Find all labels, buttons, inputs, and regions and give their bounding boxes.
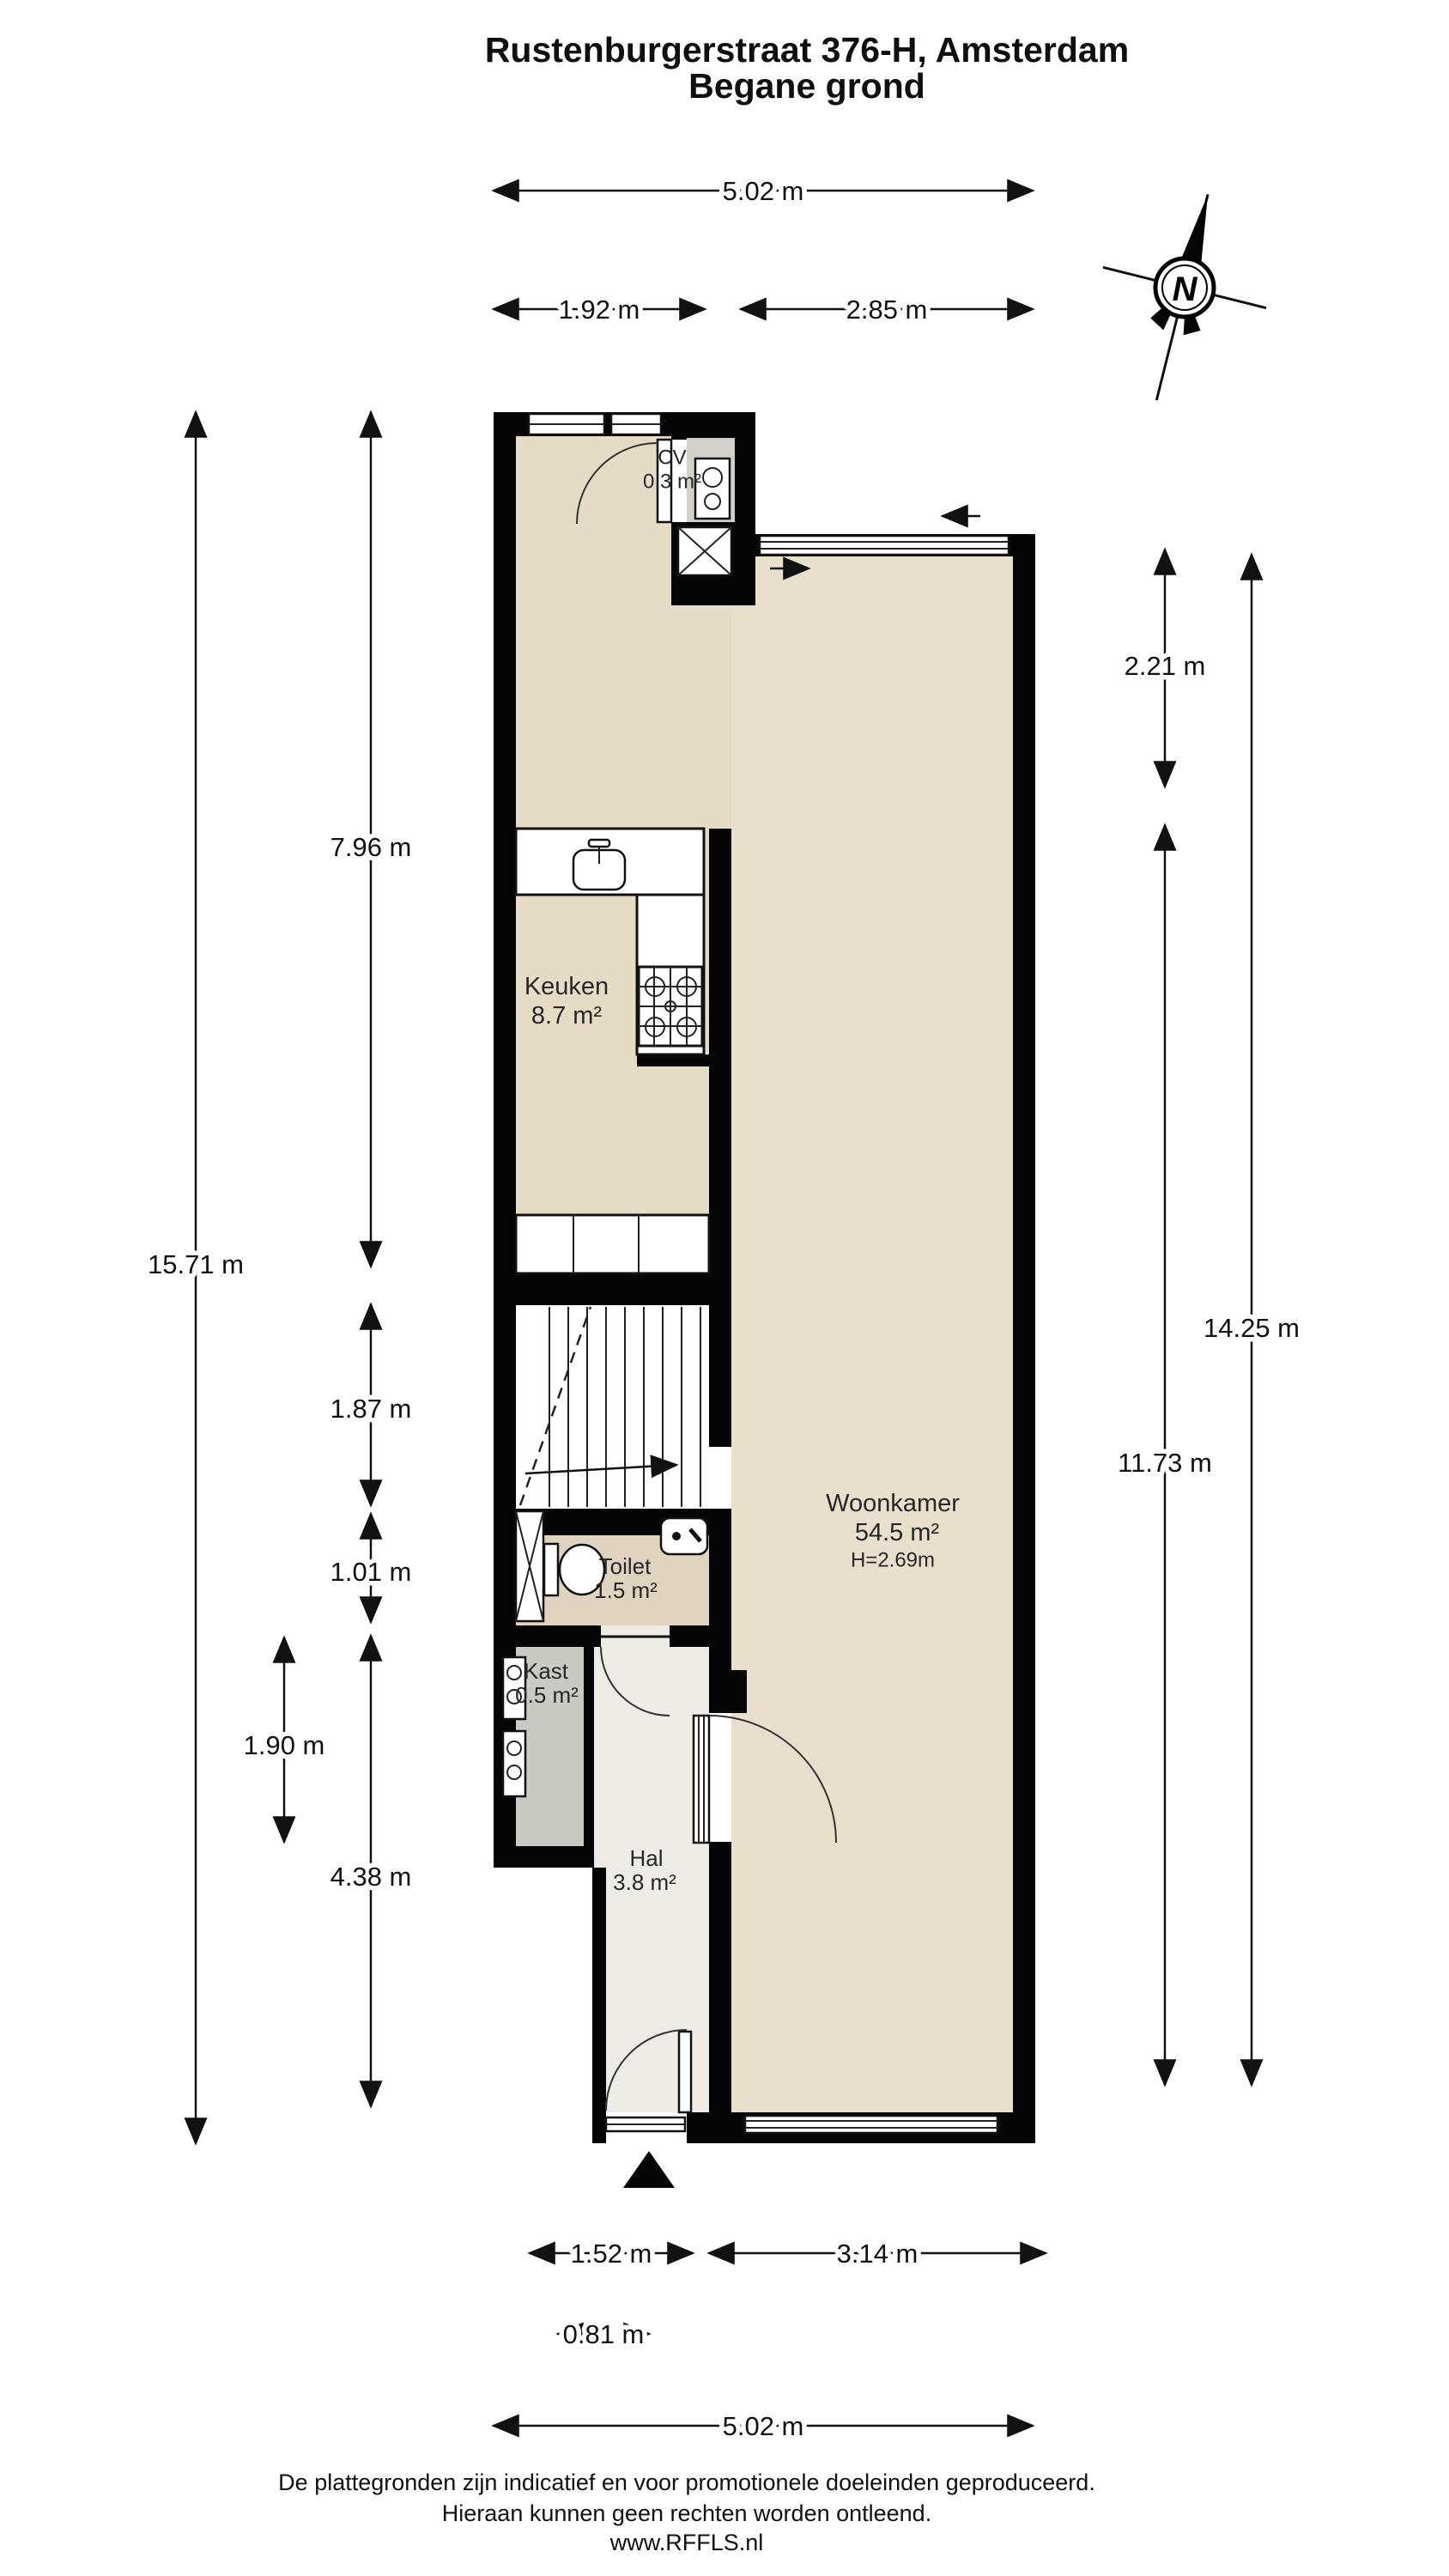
wall-right	[1013, 534, 1035, 2143]
footer-website: www.RFFLS.nl	[609, 2530, 764, 2555]
window-living-bottom	[745, 2116, 997, 2133]
wall-counter-stub	[637, 1054, 731, 1066]
duct-icon	[516, 1511, 543, 1621]
footer-disclaimer: De plattegronden zijn indicatief en voor…	[278, 2470, 1095, 2555]
floorplan-page: Rustenburgerstraat 376-H, Amsterdam Bega…	[0, 0, 1449, 2576]
dim-left-stairs: 1.87 m	[330, 1394, 412, 1424]
stove-icon	[639, 967, 702, 1046]
label-kast-name: Kast	[524, 1658, 569, 1684]
entrance-marker	[623, 2151, 675, 2188]
label-toilet-name: Toilet	[599, 1553, 652, 1579]
footer-line1: De plattegronden zijn indicatief en voor…	[278, 2470, 1095, 2495]
fountain-sink-icon	[661, 1518, 707, 1554]
wall-divider-lower	[709, 1842, 731, 2112]
label-cv-name: CV	[658, 446, 686, 469]
label-kast-area: 0.5 m²	[515, 1682, 579, 1708]
label-toilet-area: 1.5 m²	[594, 1577, 658, 1603]
compass-north-label: N	[1173, 270, 1198, 308]
floor-livingroom	[731, 556, 1013, 2112]
dim-bottom-living: 3.14 m	[837, 2239, 919, 2269]
dim-left-lower: 4.38 m	[330, 1862, 412, 1892]
kitchen-cabinets	[516, 1215, 709, 1273]
wall-toilet-bottom-left	[516, 1625, 601, 1647]
dim-top-total: 5.02 m	[723, 176, 804, 206]
compass-icon: N	[1075, 174, 1289, 421]
wall-closet-bottom	[494, 1846, 594, 1868]
title-address: Rustenburgerstraat 376-H, Amsterdam	[485, 30, 1129, 70]
dim-bottom-total: 5.02 m	[723, 2411, 804, 2441]
label-keuken-area: 8.7 m²	[531, 1002, 603, 1030]
dim-right-total: 14.25 m	[1203, 1313, 1300, 1343]
dim-left-toilet: 1.01 m	[330, 1557, 412, 1587]
label-cv-area: 0.3 m²	[643, 470, 701, 493]
dim-left-lower-outer: 1.90 m	[244, 1730, 325, 1760]
wall-bottom-middle	[687, 2112, 731, 2143]
label-hal-area: 3.8 m²	[613, 1869, 676, 1895]
title-floor: Begane grond	[688, 66, 925, 106]
dim-top-left: 1.92 m	[559, 295, 640, 325]
wall-closet-divider	[584, 1647, 594, 1846]
wall-hall-left	[592, 1868, 606, 2143]
dim-bottom-hal: 1.52 m	[571, 2239, 652, 2269]
footer-line2: Hieraan kunnen geen rechten worden ontle…	[442, 2500, 931, 2526]
dim-right-living: 11.73 m	[1118, 1448, 1212, 1478]
window-kitchen-right	[611, 414, 661, 434]
dim-top-right: 2.85 m	[846, 295, 928, 325]
window-kitchen-left	[529, 414, 604, 434]
floor-opening	[709, 601, 731, 829]
wall-divider-upper	[709, 829, 731, 1447]
label-hal-name: Hal	[629, 1845, 663, 1871]
wall-door-pier	[709, 1670, 747, 1713]
wall-kitchen-stairs	[516, 1273, 731, 1305]
floor-stairwell	[516, 1305, 709, 1509]
dim-left-upper: 7.96 m	[330, 832, 412, 862]
wall-left	[494, 412, 516, 1868]
label-woonkamer-area: 54.5 m²	[855, 1519, 940, 1546]
wall-toilet-bottom-right	[670, 1625, 709, 1647]
dim-left-total: 15.71 m	[148, 1249, 244, 1279]
dim-right-upper: 2.21 m	[1125, 651, 1206, 681]
shaft-icon	[678, 527, 731, 575]
label-woonkamer-height: H=2.69m	[851, 1548, 935, 1571]
page-title: Rustenburgerstraat 376-H, Amsterdam Bega…	[485, 30, 1129, 106]
floorplan-drawing: Rustenburgerstraat 376-H, Amsterdam Bega…	[0, 0, 1449, 2576]
dim-bottom-door: 0.81 m	[563, 2319, 645, 2349]
label-keuken-name: Keuken	[524, 973, 609, 1000]
label-woonkamer-name: Woonkamer	[826, 1490, 960, 1517]
